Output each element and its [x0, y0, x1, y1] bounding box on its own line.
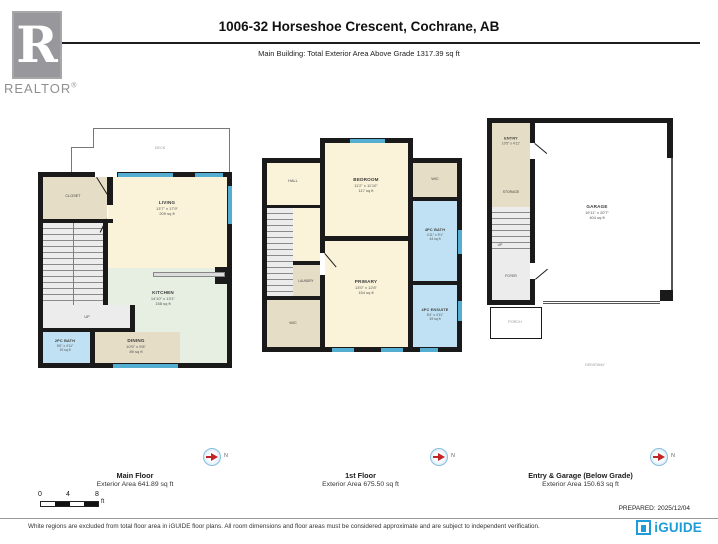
hall-room: [267, 163, 320, 205]
title-divider: [24, 42, 700, 44]
wall: [457, 158, 462, 352]
dining-label: DINING 10'5" x 9'8" 89 sq ft: [126, 338, 146, 354]
window: [381, 348, 403, 352]
room-area: 154 sq ft: [355, 290, 377, 295]
realtor-logo-icon: R: [12, 11, 62, 79]
wall: [267, 205, 320, 208]
window: [458, 301, 462, 321]
window: [332, 348, 354, 352]
entry-label: ENTRY 10'5" x 4'11": [502, 136, 520, 145]
garage-door: [543, 301, 660, 304]
compass-entry-garage: N: [650, 448, 686, 466]
page-subtitle: Main Building: Total Exterior Area Above…: [0, 49, 718, 58]
wall: [320, 275, 325, 347]
wall: [107, 177, 113, 205]
wall: [660, 290, 673, 301]
scale-segment: [55, 502, 69, 506]
floor-area: Exterior Area 675.50 sq ft: [258, 481, 463, 488]
wall: [413, 197, 457, 201]
floor-area: Exterior Area 641.89 sq ft: [35, 481, 235, 488]
floor-area: Exterior Area 150.63 sq ft: [478, 481, 683, 488]
up-label: UP: [84, 315, 89, 319]
compass-needle-tip-icon: [658, 453, 665, 461]
door-gap: [95, 172, 117, 177]
compass-needle-tip-icon: [211, 453, 218, 461]
entry-garage-caption: Entry & Garage (Below Grade) Exterior Ar…: [478, 471, 683, 488]
wic-left-label: WIC: [289, 321, 296, 325]
entry-garage-plan: ENTRY 10'5" x 4'11" STORAGE UP FOYER POR…: [485, 115, 685, 380]
wall: [487, 300, 535, 305]
window: [113, 364, 178, 368]
up-label: UP: [498, 243, 503, 247]
iguide-square-icon: [636, 520, 651, 535]
wall: [262, 158, 267, 352]
wall: [262, 158, 325, 163]
living-label: LIVING 13'7" x 17'9" 209 sq ft: [156, 200, 178, 216]
wall: [408, 138, 413, 163]
main-floor-plan: DECK CLOSET LIVING: [35, 120, 235, 380]
scale-tick-8: 8: [95, 491, 99, 498]
wall: [293, 261, 320, 265]
room-area: 404 sq ft: [585, 215, 609, 220]
compass-north-label: N: [671, 453, 675, 459]
compass-first-floor: N: [430, 448, 466, 466]
bedroom-label: BEDROOM 11'2" x 11'10" 117 sq ft: [353, 177, 378, 193]
room-area: 44 sq ft: [425, 237, 445, 241]
porch-label: PORCH: [508, 320, 522, 324]
closet-label: CLOSET: [65, 194, 80, 198]
floor-plan-sheet: R REALTOR® 1006-32 Horseshoe Crescent, C…: [0, 0, 718, 544]
wall: [130, 305, 135, 328]
wall: [408, 158, 462, 163]
wall: [487, 118, 673, 123]
room-area: 209 sq ft: [156, 211, 178, 216]
wall: [320, 241, 325, 253]
wall: [487, 118, 492, 305]
room-area: 117 sq ft: [353, 188, 378, 193]
footer-divider: [0, 518, 718, 519]
scale-tick-0: 0: [38, 491, 42, 498]
iguide-logo: iGUIDE: [636, 520, 702, 535]
disclaimer-text: White regions are excluded from total fl…: [28, 523, 540, 530]
room-dims: 10'5" x 4'11": [502, 141, 520, 145]
compass-north-label: N: [451, 453, 455, 459]
scale-bar: [40, 501, 99, 507]
wall: [530, 159, 535, 263]
floor-name: Entry & Garage (Below Grade): [478, 471, 683, 480]
room-area: 39 sq ft: [421, 317, 448, 321]
driveway-label: DRIVEWAY: [585, 363, 605, 367]
laundry-label: LAUNDRY: [298, 279, 313, 283]
garage-side-line: [671, 158, 673, 290]
wall: [103, 223, 108, 305]
door-leaf: [534, 143, 547, 154]
window: [458, 230, 462, 254]
kitchen-label: KITCHEN 14'10" x 13'1" 158 sq ft: [151, 290, 175, 306]
entry-room: [492, 123, 530, 175]
window: [228, 186, 232, 224]
window: [420, 348, 438, 352]
scale-segment: [41, 502, 55, 506]
room-area: 19 sq ft: [55, 348, 75, 352]
window: [195, 173, 223, 177]
stairs: [267, 208, 293, 296]
floor-name: Main Floor: [35, 471, 235, 480]
wic-right-label: WIC: [431, 177, 438, 181]
realtor-logo-wordmark: REALTOR®: [4, 81, 94, 96]
wall: [408, 163, 413, 347]
bath-label: 2PC BATH 5'6" x 4'11" 19 sq ft: [55, 339, 75, 353]
wall: [667, 118, 673, 158]
wall: [38, 172, 43, 368]
garage-label: GARAGE 19'11" x 20'7" 404 sq ft: [585, 204, 609, 220]
deck-label: DECK: [155, 146, 166, 150]
deck-step-outline: [71, 147, 94, 174]
window: [350, 139, 385, 143]
scale-segment: [84, 502, 98, 506]
wall: [320, 236, 413, 241]
foyer-label: FOYER: [505, 274, 517, 278]
page-title: 1006-32 Horseshoe Crescent, Cochrane, AB: [0, 19, 718, 34]
wall: [530, 123, 535, 143]
scale-tick-4: 4: [66, 491, 70, 498]
iguide-door-icon: [641, 525, 646, 532]
deck-outline: [93, 128, 230, 174]
scale-segment: [70, 502, 84, 506]
hall-label: HALL: [288, 179, 298, 183]
door-leaf: [535, 269, 548, 280]
compass-main-floor: N: [203, 448, 239, 466]
wall: [413, 281, 457, 285]
scale-unit: ft: [101, 499, 104, 505]
wall: [38, 328, 135, 332]
room-area: 158 sq ft: [151, 301, 175, 306]
bath-label: 4PC BATH 4'11" x 9'1" 44 sq ft: [425, 228, 445, 242]
realtor-brand-text: REALTOR: [4, 81, 71, 96]
ensuite-label: 4PC ENSUITE 8'4" x 4'11" 39 sq ft: [421, 308, 448, 322]
window: [118, 173, 173, 177]
storage-label: STORAGE: [503, 190, 520, 194]
main-floor-caption: Main Floor Exterior Area 641.89 sq ft: [35, 471, 235, 488]
realtor-logo-letter: R: [16, 20, 58, 70]
wall: [530, 279, 535, 300]
hall-strip: [293, 208, 320, 261]
wall: [320, 143, 325, 241]
registered-mark: ®: [71, 83, 77, 90]
floor-name: 1st Floor: [258, 471, 463, 480]
wall: [90, 332, 95, 363]
first-floor-plan: BEDROOM 11'2" x 11'10" 117 sq ft HALL LA…: [260, 135, 465, 380]
prepared-date: PREPARED: 2025/12/04: [619, 505, 690, 512]
living-room: [108, 177, 227, 268]
compass-north-label: N: [224, 453, 228, 459]
iguide-brand-text: iGUIDE: [654, 520, 702, 535]
kitchen-counter: [153, 272, 225, 277]
primary-label: PRIMARY 13'0" x 12'8" 154 sq ft: [355, 279, 377, 295]
room-area: 89 sq ft: [126, 349, 146, 354]
first-floor-caption: 1st Floor Exterior Area 675.50 sq ft: [258, 471, 463, 488]
compass-needle-tip-icon: [438, 453, 445, 461]
wall: [267, 296, 320, 300]
closet-room: [43, 177, 107, 219]
stair-rail: [73, 223, 74, 305]
